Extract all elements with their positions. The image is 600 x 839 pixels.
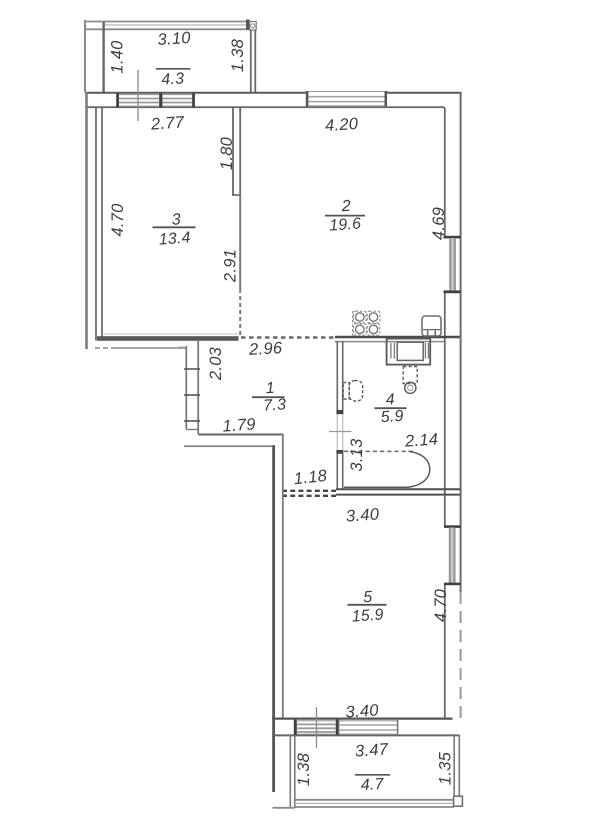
- svg-text:2: 2: [340, 198, 351, 216]
- svg-text:2.77: 2.77: [149, 113, 185, 133]
- svg-text:5: 5: [363, 589, 373, 606]
- svg-text:3.40: 3.40: [345, 701, 380, 721]
- svg-text:3.47: 3.47: [354, 740, 389, 760]
- svg-text:4.69: 4.69: [430, 207, 448, 240]
- svg-text:2.96: 2.96: [248, 339, 284, 359]
- svg-text:1.18: 1.18: [293, 467, 329, 488]
- svg-text:1.80: 1.80: [218, 136, 236, 170]
- svg-text:1.79: 1.79: [222, 415, 257, 435]
- svg-text:7.3: 7.3: [263, 396, 287, 415]
- svg-text:19.6: 19.6: [329, 215, 362, 234]
- svg-text:15.9: 15.9: [351, 606, 384, 625]
- svg-text:3.40: 3.40: [345, 505, 380, 525]
- svg-text:3: 3: [171, 211, 181, 228]
- svg-text:4.3: 4.3: [161, 70, 185, 88]
- svg-text:4.7: 4.7: [360, 776, 385, 794]
- svg-text:1.40: 1.40: [109, 40, 127, 74]
- svg-text:4: 4: [385, 391, 395, 408]
- svg-text:1.38: 1.38: [229, 38, 247, 72]
- svg-text:13.4: 13.4: [158, 229, 191, 248]
- svg-text:1.38: 1.38: [295, 752, 313, 786]
- svg-text:1: 1: [265, 380, 275, 397]
- svg-text:3.10: 3.10: [157, 29, 192, 49]
- svg-text:2.03: 2.03: [207, 346, 225, 381]
- svg-text:4.70: 4.70: [109, 203, 127, 237]
- svg-text:5.9: 5.9: [380, 408, 404, 427]
- svg-text:1.35: 1.35: [437, 751, 455, 785]
- svg-text:2.14: 2.14: [403, 430, 439, 450]
- svg-text:2.91: 2.91: [222, 249, 240, 283]
- svg-text:3.13: 3.13: [348, 438, 366, 472]
- svg-text:4.70: 4.70: [432, 588, 450, 622]
- svg-text:4.20: 4.20: [324, 115, 359, 135]
